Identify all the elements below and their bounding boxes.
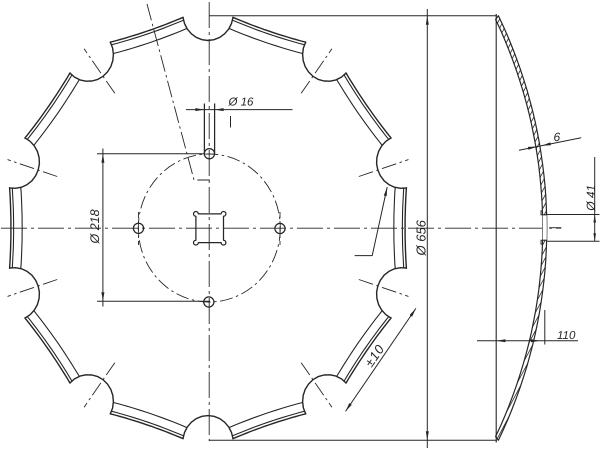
svg-text:110: 110 [557,330,576,342]
svg-text:Ø 218: Ø 218 [88,209,102,244]
svg-text:Ø 656: Ø 656 [413,219,428,256]
svg-text:6: 6 [554,130,561,144]
svg-text:Ø 41: Ø 41 [584,185,598,212]
svg-text:Ø 16: Ø 16 [228,97,255,109]
